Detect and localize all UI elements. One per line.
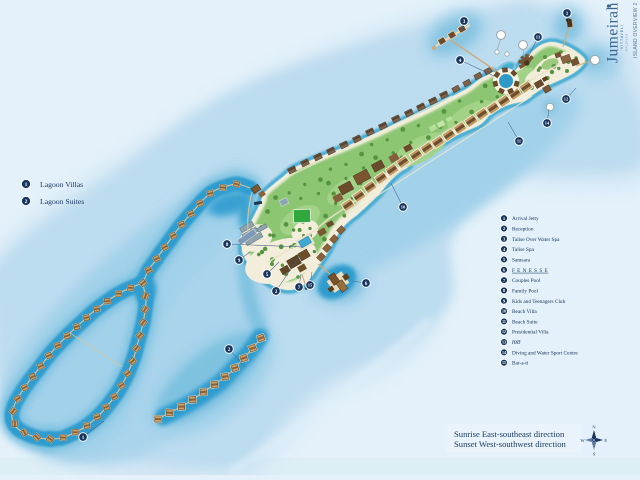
svg-text:F E N E S S E: F E N E S S E: [512, 268, 548, 274]
svg-text:14: 14: [502, 350, 506, 355]
svg-text:1: 1: [82, 435, 85, 441]
svg-text:7: 7: [298, 285, 301, 291]
svg-text:4: 4: [459, 58, 462, 64]
svg-text:Kids and Teenagers Club: Kids and Teenagers Club: [512, 299, 566, 305]
svg-text:11: 11: [502, 319, 506, 324]
svg-text:12: 12: [502, 329, 506, 334]
svg-text:1: 1: [566, 11, 569, 17]
svg-text:Talise Over Water Spa: Talise Over Water Spa: [512, 237, 560, 243]
svg-text:6: 6: [365, 281, 368, 287]
svg-text:1: 1: [25, 182, 28, 188]
svg-text:2: 2: [228, 347, 231, 353]
svg-text:9: 9: [238, 258, 241, 264]
svg-text:Lagoon Suites: Lagoon Suites: [40, 197, 84, 206]
svg-text:8: 8: [226, 242, 229, 248]
svg-text:VITTAVELI: VITTAVELI: [620, 24, 624, 49]
svg-text:15: 15: [502, 360, 506, 365]
svg-text:Diving and Water Sport Centre: Diving and Water Sport Centre: [512, 350, 578, 356]
svg-text:Samsara: Samsara: [512, 257, 531, 263]
svg-text:13: 13: [502, 339, 506, 344]
svg-text:Beach Villa: Beach Villa: [512, 309, 537, 315]
svg-text:Presidential Villa: Presidential Villa: [512, 330, 549, 336]
svg-text:Sunset West-southwest directio: Sunset West-southwest direction: [454, 439, 567, 449]
svg-text:11: 11: [517, 139, 521, 144]
svg-text:Reception: Reception: [512, 227, 534, 233]
svg-text:3: 3: [463, 19, 466, 25]
svg-text:E: E: [604, 438, 607, 443]
svg-text:Lagoon Villas: Lagoon Villas: [40, 180, 83, 189]
svg-text:12: 12: [564, 97, 568, 102]
svg-text:Beach Suite: Beach Suite: [512, 319, 538, 325]
svg-text:Arrival Jetty: Arrival Jetty: [512, 216, 539, 222]
svg-text:Sunrise East-southeast directi: Sunrise East-southeast direction: [454, 429, 565, 439]
svg-text:ISLAND OVERVIEW 2: ISLAND OVERVIEW 2: [633, 2, 639, 58]
svg-text:5: 5: [266, 272, 269, 278]
svg-text:MALDIVES: MALDIVES: [625, 33, 629, 51]
svg-text:mʊ: mʊ: [512, 339, 521, 346]
svg-text:2: 2: [25, 199, 28, 205]
svg-text:Family Pool: Family Pool: [512, 288, 539, 294]
svg-text:10: 10: [502, 309, 506, 314]
svg-text:Talise Spa: Talise Spa: [512, 247, 534, 253]
svg-text:2: 2: [275, 289, 278, 295]
svg-text:Bar-a-ti: Bar-a-ti: [512, 361, 529, 367]
svg-text:Jumeirah: Jumeirah: [605, 2, 622, 63]
svg-text:Couples Pool: Couples Pool: [512, 278, 541, 284]
